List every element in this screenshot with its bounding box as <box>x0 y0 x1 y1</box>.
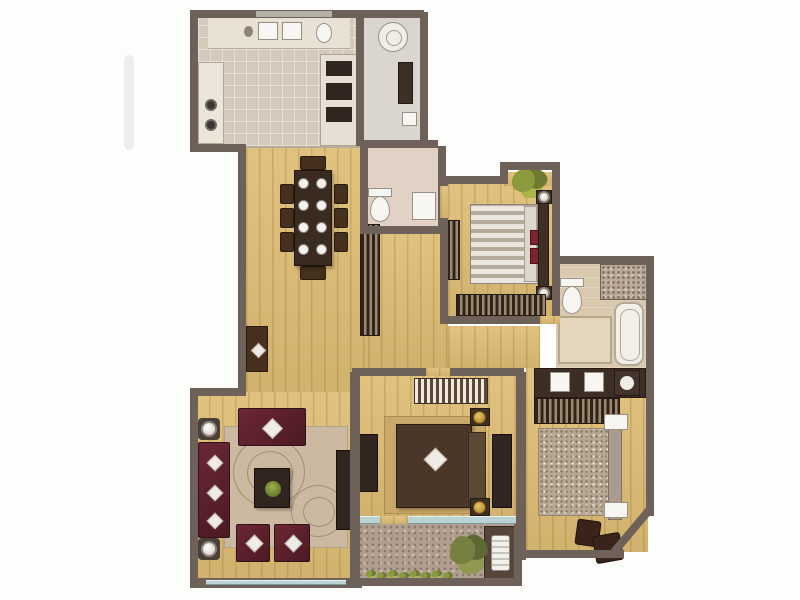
living-room <box>196 392 352 580</box>
wc <box>366 146 438 228</box>
vanity-sink <box>550 372 570 392</box>
wall-outer-right <box>646 256 654 516</box>
kitchen-window <box>256 11 332 17</box>
place-setting <box>316 244 327 255</box>
ensuite-bathroom <box>556 264 648 368</box>
wall-top-right <box>500 162 560 170</box>
wall-wc-bottom <box>360 226 446 234</box>
faucet-icon <box>244 26 253 37</box>
wall-wc-top <box>360 140 438 148</box>
bookshelf <box>360 224 380 336</box>
hall-cabinet <box>446 220 460 280</box>
wall-living-step <box>190 388 246 396</box>
scan-smudge <box>124 55 134 150</box>
appliance-icon <box>326 107 352 122</box>
wall-balcony-bottom <box>356 578 522 586</box>
bed-dark <box>396 424 472 508</box>
gold-lamp-icon <box>473 411 486 424</box>
sofa-cushion <box>262 418 283 439</box>
hallway-vertical <box>368 234 448 368</box>
toilet-icon <box>370 196 390 222</box>
wall-balcony-right <box>514 522 522 580</box>
wall-bedroom2-bottom <box>526 550 624 558</box>
wall-master-top-right <box>450 368 524 376</box>
dish-basin <box>316 23 332 43</box>
wardrobe <box>358 434 378 492</box>
ac-unit-icon <box>491 535 510 571</box>
wall-bedroom1-bottom <box>440 316 540 324</box>
washer-icon <box>614 370 640 396</box>
washer-drum <box>386 30 402 46</box>
wall-kitchen-left <box>190 10 198 152</box>
floor-plan-canvas <box>0 0 800 600</box>
wall-bath-top <box>552 256 654 264</box>
wall-kitchen-utility <box>356 12 364 146</box>
sofa-cushion <box>284 534 302 552</box>
media-unit <box>492 434 512 508</box>
floor-lamp-icon <box>201 541 217 557</box>
sink-basin-left <box>258 22 278 40</box>
wall-living-left <box>190 392 198 588</box>
sofa-cushion <box>207 485 224 502</box>
dining-chair <box>334 184 348 204</box>
dining-chair <box>280 208 294 228</box>
bed-fur <box>538 428 610 516</box>
dining-chair <box>280 184 294 204</box>
dining-chair <box>300 266 326 280</box>
master-bedroom <box>358 376 516 518</box>
washer-door <box>620 376 634 390</box>
oven-column <box>320 54 358 146</box>
utility-bathroom <box>364 18 420 140</box>
armchair <box>274 524 310 562</box>
console-decor <box>251 343 267 359</box>
headboard <box>538 202 549 288</box>
cooktop-counter <box>198 62 224 144</box>
wall-master-left <box>350 372 360 580</box>
lamp-icon <box>538 191 550 203</box>
place-setting <box>316 222 327 233</box>
nightstand <box>604 414 628 430</box>
ac-unit-niche <box>484 526 516 580</box>
diamond-pillow <box>423 447 447 471</box>
toilet-icon <box>562 286 582 314</box>
shower-tray <box>412 192 436 220</box>
sofa <box>198 442 230 538</box>
striped-dresser <box>414 378 488 404</box>
balcony <box>358 524 516 580</box>
sofa-cushion <box>207 455 224 472</box>
console-table <box>246 326 268 372</box>
place-setting <box>298 200 309 211</box>
long-dresser <box>456 294 546 316</box>
washing-machine-icon <box>378 22 408 52</box>
shrub-icon <box>450 534 488 574</box>
door-gap-balcony <box>380 516 408 524</box>
microwave-icon <box>326 83 352 100</box>
loveseat <box>238 408 306 446</box>
armchair <box>236 524 270 562</box>
nightstand <box>604 502 628 518</box>
bath-cabinet <box>600 264 648 300</box>
place-setting <box>298 244 309 255</box>
oven-icon <box>326 61 352 76</box>
place-setting <box>316 178 327 189</box>
dining-chair <box>334 208 348 228</box>
rug-swirl <box>303 497 335 527</box>
wall-bedroom1-left <box>440 218 448 324</box>
headboard <box>468 432 486 502</box>
wall-entry-top <box>440 176 508 184</box>
bedroom-right <box>526 368 648 552</box>
door-gap-master <box>426 368 450 376</box>
vanity-sink <box>584 372 604 392</box>
sofa-cushion <box>245 534 263 552</box>
place-setting <box>316 200 327 211</box>
wall-utility-right <box>420 12 428 146</box>
gold-lamp-icon <box>473 501 486 514</box>
kitchen <box>198 18 360 149</box>
place-setting <box>298 222 309 233</box>
sink-basin-right <box>282 22 302 40</box>
utility-cabinet <box>398 62 413 104</box>
wall-master-top-left <box>352 368 426 376</box>
wall-dining-left <box>238 148 246 396</box>
wall-bedroom1-right <box>552 162 560 316</box>
door-gap-bath <box>540 316 560 324</box>
table-plant-icon <box>265 481 281 497</box>
door-gap-bedroom1 <box>440 186 448 218</box>
bedroom-top-right <box>448 164 552 318</box>
bathtub-icon <box>614 302 644 366</box>
sofa-cushion <box>207 513 224 530</box>
burner-icon <box>205 99 217 111</box>
hallway-horizontal <box>448 326 540 368</box>
living-window <box>206 580 346 585</box>
burner-icon <box>205 119 217 131</box>
coffee-table <box>254 468 290 508</box>
utility-fixture <box>402 112 417 126</box>
dining-chair <box>334 232 348 252</box>
place-setting <box>298 178 309 189</box>
floor-lamp-icon <box>201 421 217 437</box>
dining-chair <box>280 232 294 252</box>
wall-wc-left <box>360 146 368 228</box>
walk-in-shower <box>558 316 612 364</box>
wall-utility-top <box>360 10 424 18</box>
bathtub-basin <box>620 309 640 361</box>
dining-chair <box>300 156 326 170</box>
